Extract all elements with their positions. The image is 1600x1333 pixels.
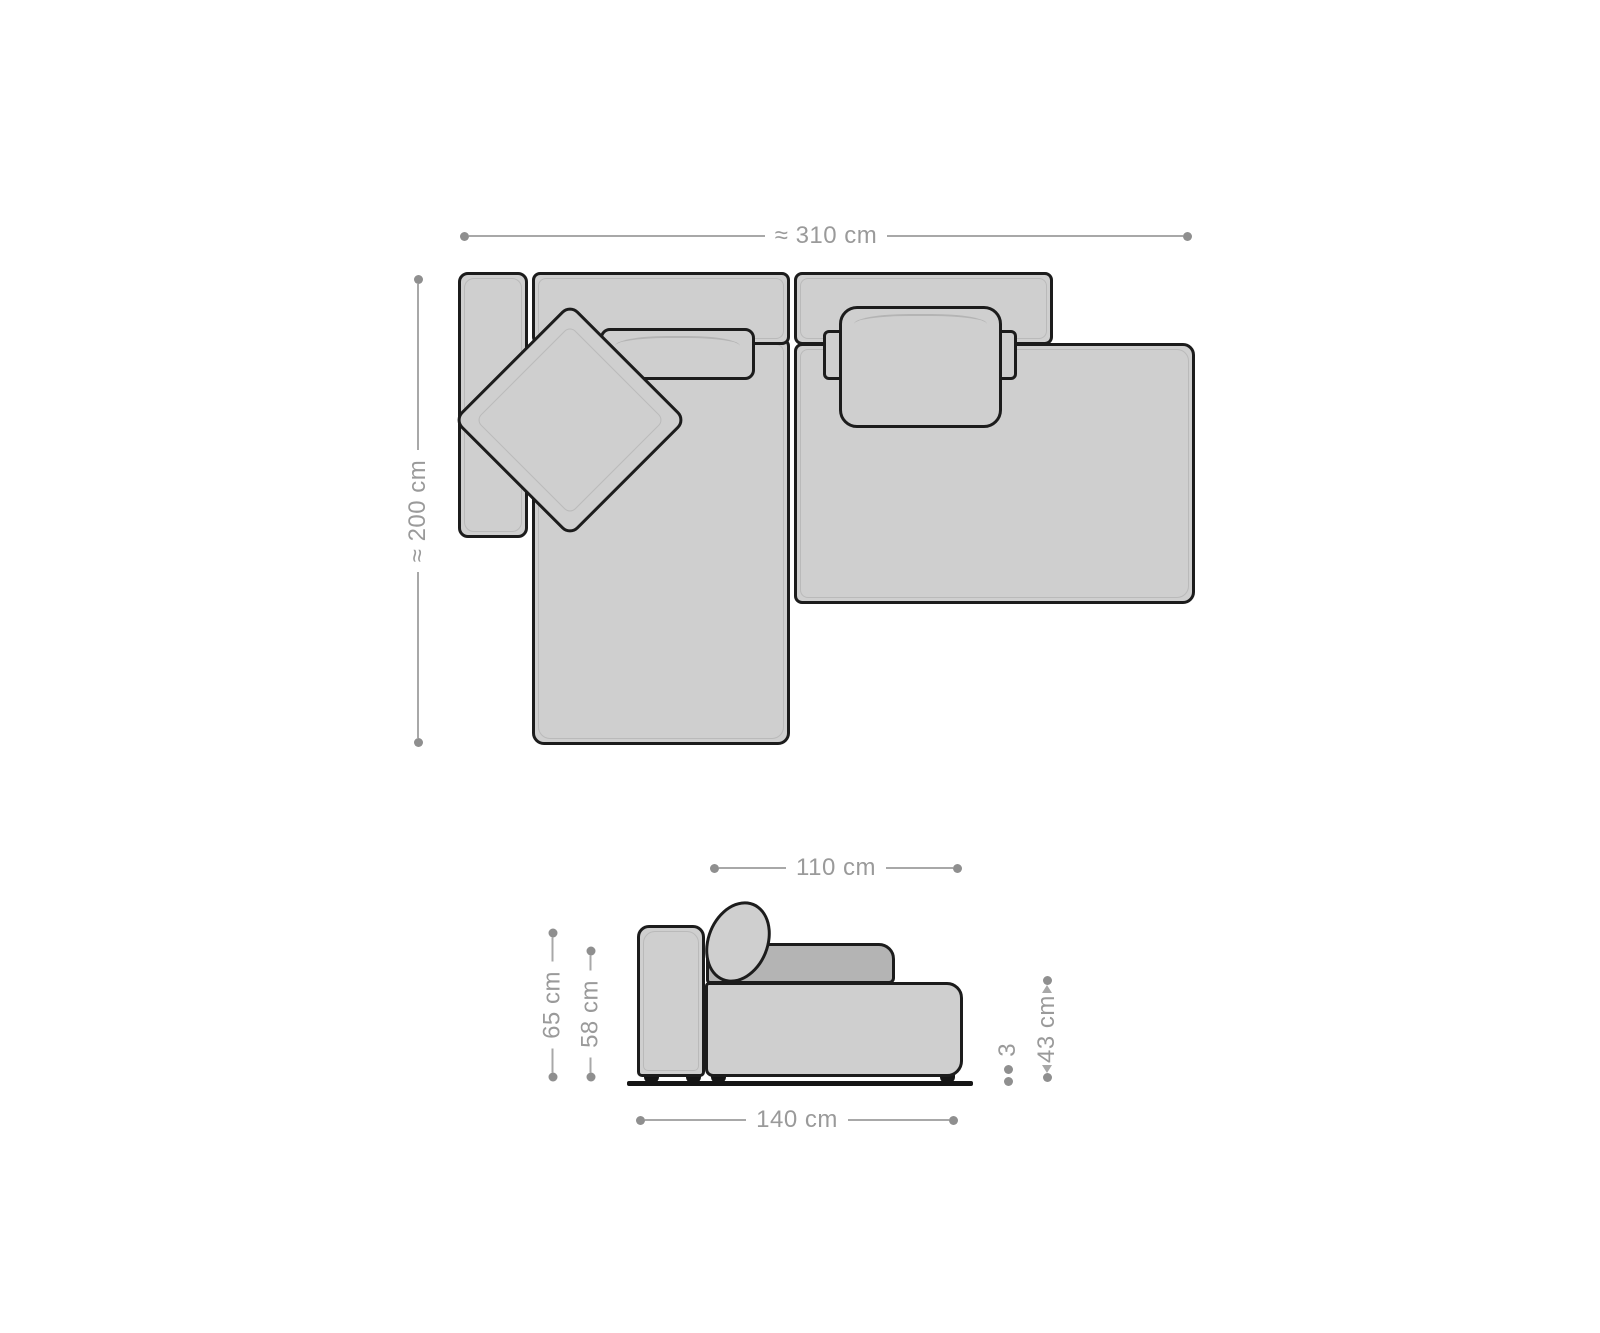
backrest-side-view bbox=[637, 925, 705, 1077]
dimension-endpoint-dot bbox=[460, 232, 469, 241]
dimension-endpoint-dot bbox=[586, 1073, 595, 1082]
dimension-endpoint-dot bbox=[548, 928, 557, 937]
dimension-endpoint-dot bbox=[1043, 1073, 1052, 1082]
lumbar-cushion-seam bbox=[615, 336, 740, 356]
dimension-back-height-label: 58 cm bbox=[577, 970, 605, 1058]
dimension-line bbox=[886, 867, 953, 869]
arrow-down-icon bbox=[1042, 1065, 1052, 1073]
dimension-total-height: 65 cm bbox=[539, 929, 567, 1082]
dimension-endpoint-dot bbox=[414, 275, 423, 284]
dimension-seat-depth: 110 cm bbox=[710, 854, 962, 882]
dimension-total-depth-side: 140 cm bbox=[636, 1106, 958, 1134]
dimension-line bbox=[552, 1049, 554, 1073]
sofa-dimension-diagram: ≈ 310 cm ≈ 200 cm bbox=[0, 0, 1600, 1333]
dimension-line bbox=[719, 867, 786, 869]
arrow-up-icon bbox=[1042, 985, 1052, 993]
dimension-total-width-label: ≈ 310 cm bbox=[765, 222, 888, 250]
dimension-endpoint-dot bbox=[1043, 976, 1052, 985]
dimension-foot-height-label: 3 bbox=[996, 1038, 1020, 1062]
dimension-endpoint-dot bbox=[1004, 1065, 1013, 1074]
dimension-endpoint-dot bbox=[586, 946, 595, 955]
dimension-total-height-label: 65 cm bbox=[539, 961, 567, 1049]
dimension-endpoint-dot bbox=[949, 1116, 958, 1125]
dimension-total-width: ≈ 310 cm bbox=[460, 222, 1192, 250]
dimension-line bbox=[552, 937, 554, 961]
dimension-line bbox=[645, 1119, 746, 1121]
seat-side-view bbox=[705, 982, 963, 1077]
dimension-endpoint-dot bbox=[953, 864, 962, 873]
backrest-side-inner-seam bbox=[643, 931, 699, 1071]
dimension-back-height: 58 cm bbox=[577, 947, 605, 1082]
headrest-cushion-seam bbox=[854, 314, 987, 334]
dimension-endpoint-dot bbox=[548, 1073, 557, 1082]
dimension-seat-height: 43 cm bbox=[1033, 988, 1061, 1082]
dimension-endpoint-dot bbox=[710, 864, 719, 873]
dimension-line bbox=[417, 572, 419, 738]
headrest-cushion-top-view bbox=[839, 306, 1002, 428]
dimension-seat-height-label: 43 cm bbox=[1033, 993, 1061, 1065]
dimension-line bbox=[469, 235, 765, 237]
dimension-total-depth-label: ≈ 200 cm bbox=[404, 450, 432, 573]
dimension-total-depth: ≈ 200 cm bbox=[404, 275, 432, 747]
dimension-endpoint-dot bbox=[414, 738, 423, 747]
dimension-line bbox=[590, 955, 592, 970]
dimension-total-depth-side-label: 140 cm bbox=[746, 1106, 848, 1134]
dimension-seat-depth-label: 110 cm bbox=[786, 854, 886, 882]
dimension-endpoint-dot bbox=[1004, 1077, 1013, 1086]
dimension-endpoint-dot bbox=[636, 1116, 645, 1125]
dimension-endpoint-dot bbox=[1183, 232, 1192, 241]
dimension-line bbox=[887, 235, 1183, 237]
dimension-line bbox=[417, 284, 419, 450]
dimension-line bbox=[848, 1119, 949, 1121]
ground-line bbox=[627, 1081, 973, 1086]
dimension-line bbox=[590, 1058, 592, 1073]
